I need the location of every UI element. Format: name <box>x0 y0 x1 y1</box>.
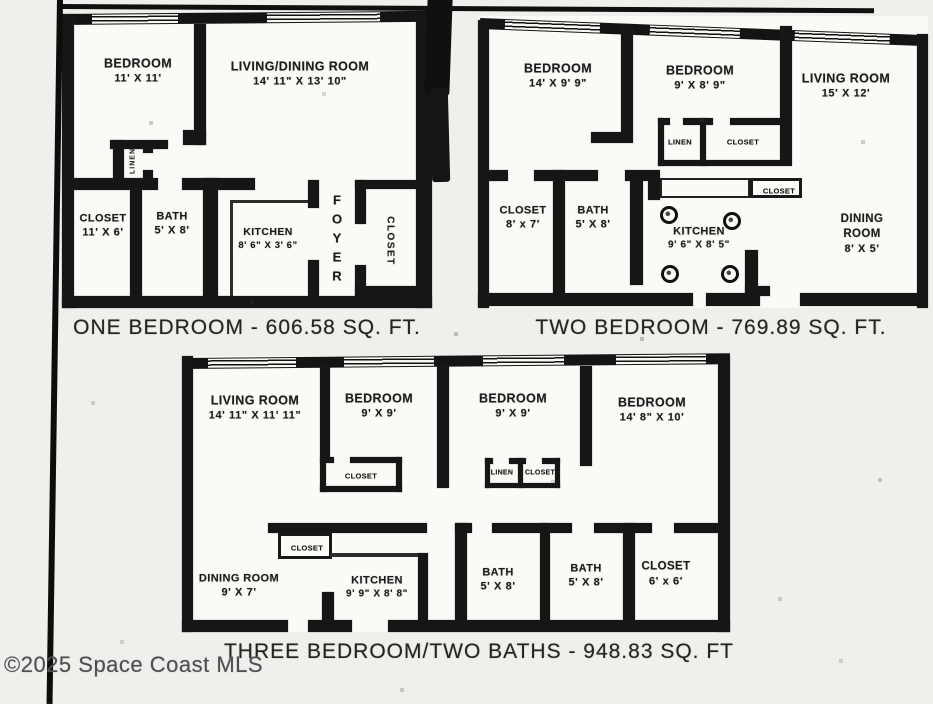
room-label-bath-2: BATH 5' X 8' <box>568 562 603 591</box>
room-dims: 15' X 12' <box>802 87 890 101</box>
kitchen-counter <box>330 553 423 557</box>
room-label-linen: LINEN <box>668 138 692 147</box>
room-label-hall-closet: CLOSET <box>727 138 759 147</box>
room-dims: 9' 6" X 8' 5" <box>668 239 730 252</box>
room-dims: 14' 8" X 10' <box>618 411 686 425</box>
room-dims: 8' X 5' <box>826 242 898 256</box>
wall <box>308 260 319 296</box>
wall <box>320 366 330 457</box>
wall <box>917 34 928 308</box>
wall <box>580 366 592 466</box>
room-dims: 8' 6" X 3' 6" <box>238 240 297 252</box>
wall <box>194 24 206 145</box>
wall <box>350 457 402 463</box>
stove-burner-icon <box>721 265 739 283</box>
room-dims: 9' X 7' <box>199 586 279 600</box>
room-name: CLOSET <box>79 212 126 226</box>
watermark: ©2025 Space Coast MLS <box>4 652 263 678</box>
window-marker <box>616 354 706 364</box>
wall <box>183 130 206 145</box>
wall <box>550 523 572 533</box>
wall <box>800 293 917 306</box>
room-label-entry-closet: CLOSET <box>385 216 396 266</box>
room-name: BEDROOM <box>524 61 592 77</box>
room-label-bedroom-2-closet: CLOSET <box>525 470 555 477</box>
room-dims: 5' X 8' <box>154 224 189 238</box>
scan-smudge <box>430 88 450 182</box>
room-label-linen: LINEN <box>130 148 137 174</box>
window-marker <box>795 31 890 44</box>
room-name: BEDROOM <box>666 63 734 79</box>
room-label-kitchen: KITCHEN 8' 6" X 3' 6" <box>238 226 297 252</box>
room-dims: 14' 11" X 11' 11" <box>209 409 302 423</box>
room-dims: 5' X 8' <box>480 580 515 594</box>
wall <box>480 18 920 46</box>
caption-two-bedroom: TWO BEDROOM - 769.89 SQ. FT. <box>486 316 933 340</box>
wall <box>320 486 402 492</box>
kitchen-counter <box>660 178 750 198</box>
window-marker <box>267 12 380 22</box>
room-dims: 11' X 11' <box>104 72 172 86</box>
room-label-closet: CLOSET 6' x 6' <box>641 559 690 588</box>
room-dims: 6' x 6' <box>641 574 690 588</box>
room-label-living-dining: LIVING/DINING ROOM 14' 11" X 13' 10" <box>231 59 369 90</box>
room-label-bedroom-2: BEDROOM 9' X 8' 9" <box>666 63 734 94</box>
scan-page-edge-left <box>47 0 63 704</box>
room-label-bedroom-1: BEDROOM 14' X 9' 9" <box>524 61 592 92</box>
wall <box>485 483 560 488</box>
room-label-kitchen-closet: CLOSET <box>763 187 795 196</box>
wall <box>437 366 449 488</box>
room-label-bedroom: BEDROOM 11' X 11' <box>104 56 172 87</box>
wall <box>182 356 193 632</box>
wall <box>143 141 153 153</box>
wall <box>674 523 718 533</box>
wall <box>745 286 770 296</box>
room-name: KITCHEN <box>668 224 730 238</box>
room-label-living-room: LIVING ROOM 15' X 12' <box>802 71 890 102</box>
room-name: BEDROOM <box>479 391 547 407</box>
stove-burner-icon <box>661 265 679 283</box>
room-label-dining-room: DINING ROOM 8' X 5' <box>826 212 898 256</box>
room-label-closet: CLOSET 8' x 7' <box>499 204 546 233</box>
room-label-hall-closet: CLOSET <box>291 544 323 553</box>
room-dims: 8' x 7' <box>499 218 546 232</box>
scan-smudge <box>424 0 452 96</box>
wall <box>625 170 648 181</box>
room-name: BEDROOM <box>618 395 686 411</box>
wall <box>182 178 255 190</box>
room-dims: 9' X 9' <box>479 407 547 421</box>
room-name: BEDROOM <box>104 56 172 72</box>
room-dims: 9' X 9' <box>345 407 413 421</box>
wall <box>62 296 432 308</box>
room-dims: 5' X 8' <box>568 576 603 590</box>
room-label-bedroom-3: BEDROOM 14' 8" X 10' <box>618 395 686 426</box>
window-marker <box>650 26 740 38</box>
wall <box>203 178 218 296</box>
wall <box>62 14 74 308</box>
window-marker <box>344 357 434 367</box>
caption-three-bedroom: THREE BEDROOM/TWO BATHS - 948.83 SQ. FT <box>205 640 753 664</box>
wall <box>113 140 124 182</box>
room-name: BEDROOM <box>345 391 413 407</box>
kitchen-counter <box>230 200 308 203</box>
floorplan-three-bedroom: CLOSET LIVING ROOM 14' 11" X 11' 11" BED… <box>182 356 730 632</box>
room-label-bath-1: BATH 5' X 8' <box>480 566 515 595</box>
window-marker <box>483 356 564 366</box>
room-name: LIVING/DINING ROOM <box>231 59 369 75</box>
room-name: KITCHEN <box>238 226 297 240</box>
room-label-dining-room: DINING ROOM 9' X 7' <box>199 572 279 601</box>
wall <box>478 20 489 308</box>
window-marker <box>208 358 296 368</box>
wall <box>700 118 706 166</box>
wall <box>355 286 420 296</box>
room-label-bath: BATH 5' X 8' <box>575 204 610 233</box>
room-label-living-room: LIVING ROOM 14' 11" X 11' 11" <box>209 393 302 424</box>
wall <box>540 523 550 620</box>
room-name: LIVING ROOM <box>209 393 302 409</box>
wall <box>553 170 565 293</box>
wall <box>658 160 780 166</box>
kitchen-counter <box>230 200 233 296</box>
room-dims: 9' 9" X 8' 8" <box>346 588 408 601</box>
wall <box>683 118 713 125</box>
room-name: BATH <box>480 566 515 580</box>
wall <box>486 170 508 181</box>
window-marker <box>505 20 600 33</box>
wall <box>591 132 633 143</box>
wall <box>630 181 643 285</box>
wall <box>621 26 633 132</box>
room-label-closet: CLOSET 11' X 6' <box>79 212 126 241</box>
wall <box>780 26 792 166</box>
wall <box>355 180 366 224</box>
room-name: BATH <box>154 210 189 224</box>
wall <box>308 180 319 208</box>
wall <box>730 118 780 125</box>
room-label-bedroom-2: BEDROOM 9' X 9' <box>479 391 547 422</box>
floorplan-two-bedroom: CLOSET BEDROOM 14' X 9' 9" BEDROOM 9' X … <box>478 16 928 308</box>
room-name: CLOSET <box>499 204 546 218</box>
room-label-bedroom-1-closet: CLOSET <box>345 472 377 481</box>
wall <box>322 592 334 620</box>
room-label-linen: LINEN <box>491 470 514 477</box>
wall <box>648 170 660 200</box>
room-label-foyer: FOYER <box>330 193 345 288</box>
room-label-kitchen: KITCHEN 9' 6" X 8' 5" <box>668 224 730 251</box>
scan-page-edge-top <box>62 4 874 13</box>
window-marker <box>92 14 178 24</box>
kitchen-closet-box: CLOSET <box>750 178 802 198</box>
wall <box>182 620 288 632</box>
wall <box>268 523 427 533</box>
wall <box>62 11 432 25</box>
wall <box>478 293 693 306</box>
room-name: DINING ROOM <box>826 212 898 242</box>
scan-speckles <box>0 0 2 2</box>
room-dims: 11' X 6' <box>79 226 126 240</box>
wall <box>388 620 730 632</box>
room-name: CLOSET <box>641 559 690 574</box>
room-name: BATH <box>568 562 603 576</box>
room-dims: 14' X 9' 9" <box>524 77 592 91</box>
hall-closet-box: CLOSET <box>278 533 332 559</box>
room-name: LIVING ROOM <box>802 71 890 87</box>
room-name: DINING ROOM <box>199 572 279 586</box>
room-name: KITCHEN <box>346 573 408 587</box>
room-dims: 9' X 8' 9" <box>666 79 734 93</box>
wall <box>658 118 664 166</box>
wall <box>130 190 142 296</box>
wall <box>623 523 635 620</box>
caption-one-bedroom: ONE BEDROOM - 606.58 SQ. FT. <box>62 316 432 340</box>
floorplan-one-bedroom: BEDROOM 11' X 11' LIVING/DINING ROOM 14'… <box>62 14 432 308</box>
room-label-bath: BATH 5' X 8' <box>154 210 189 239</box>
wall <box>638 523 652 533</box>
room-label-kitchen: KITCHEN 9' 9" X 8' 8" <box>346 573 408 600</box>
wall <box>308 620 352 632</box>
room-dims: 5' X 8' <box>575 218 610 232</box>
wall <box>455 523 467 620</box>
wall <box>718 356 730 632</box>
room-dims: 14' 11" X 13' 10" <box>231 75 369 89</box>
wall <box>418 553 428 620</box>
stove-burner-icon <box>660 206 678 224</box>
floorplan-page: BEDROOM 11' X 11' LIVING/DINING ROOM 14'… <box>0 0 933 701</box>
wall <box>534 170 598 181</box>
wall <box>143 170 153 182</box>
room-name: BATH <box>575 204 610 218</box>
room-label-bedroom-1: BEDROOM 9' X 9' <box>345 391 413 422</box>
wall <box>182 353 730 369</box>
